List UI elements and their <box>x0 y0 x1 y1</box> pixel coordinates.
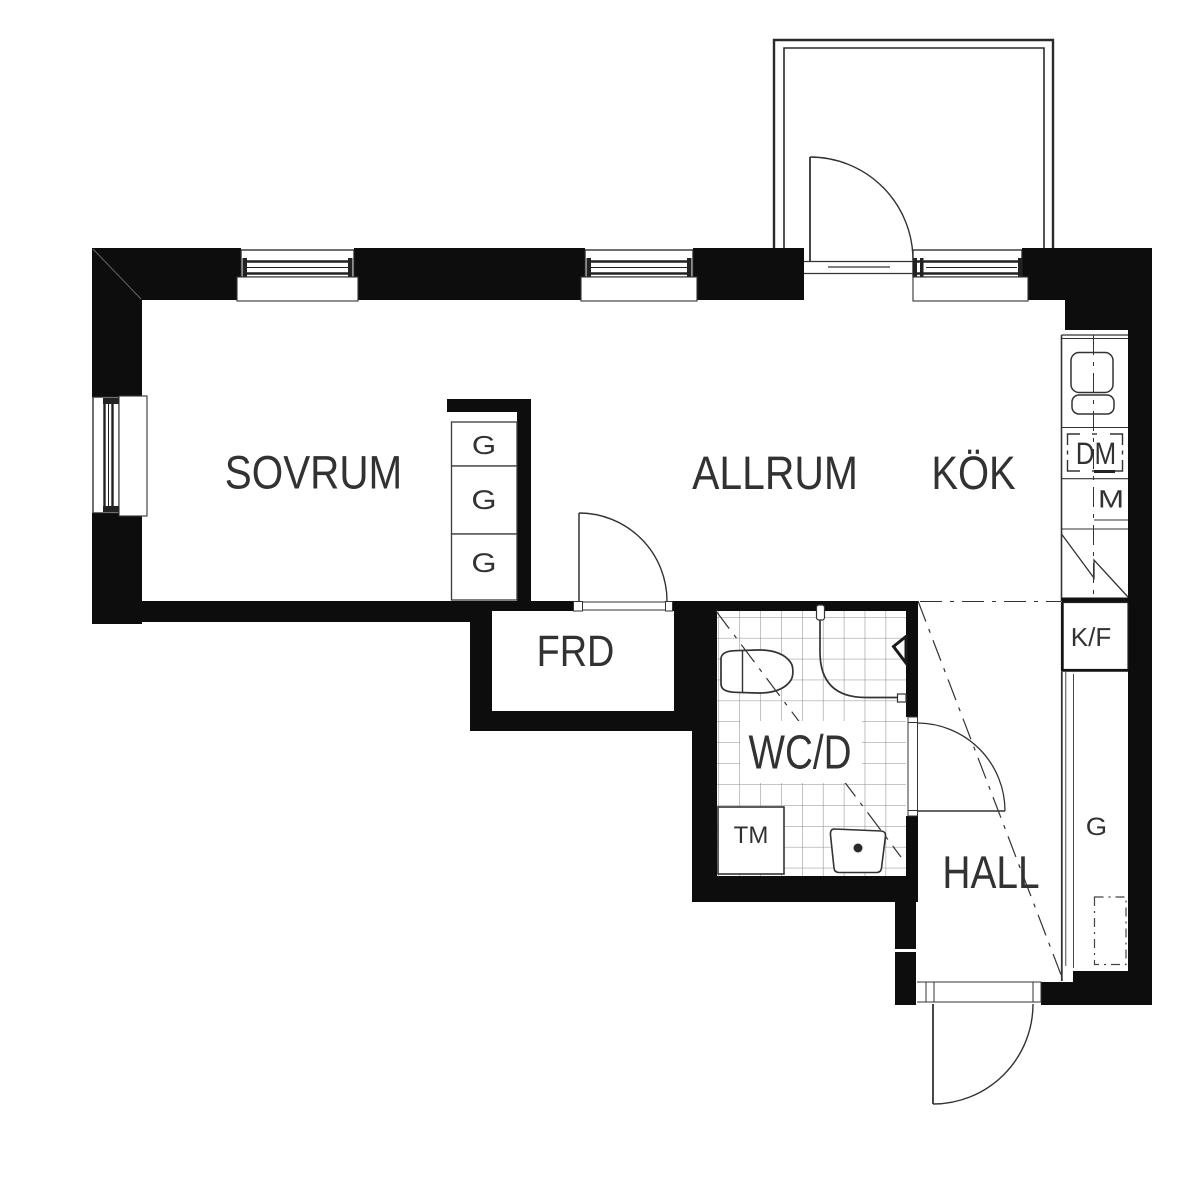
svg-text:SOVRUM: SOVRUM <box>225 445 402 498</box>
svg-text:G: G <box>472 430 496 460</box>
svg-text:G: G <box>471 485 496 515</box>
svg-text:G: G <box>471 548 496 578</box>
svg-text:G: G <box>1086 813 1107 841</box>
svg-text:HALL: HALL <box>942 846 1039 898</box>
svg-text:WC/D: WC/D <box>748 727 851 780</box>
svg-text:M: M <box>1098 486 1124 514</box>
svg-text:KÖK: KÖK <box>931 446 1015 499</box>
svg-text:FRD: FRD <box>537 627 615 676</box>
svg-text:K/F: K/F <box>1071 622 1111 652</box>
svg-text:DM: DM <box>1076 436 1117 471</box>
svg-text:TM: TM <box>734 822 769 849</box>
svg-text:ALLRUM: ALLRUM <box>692 446 858 499</box>
